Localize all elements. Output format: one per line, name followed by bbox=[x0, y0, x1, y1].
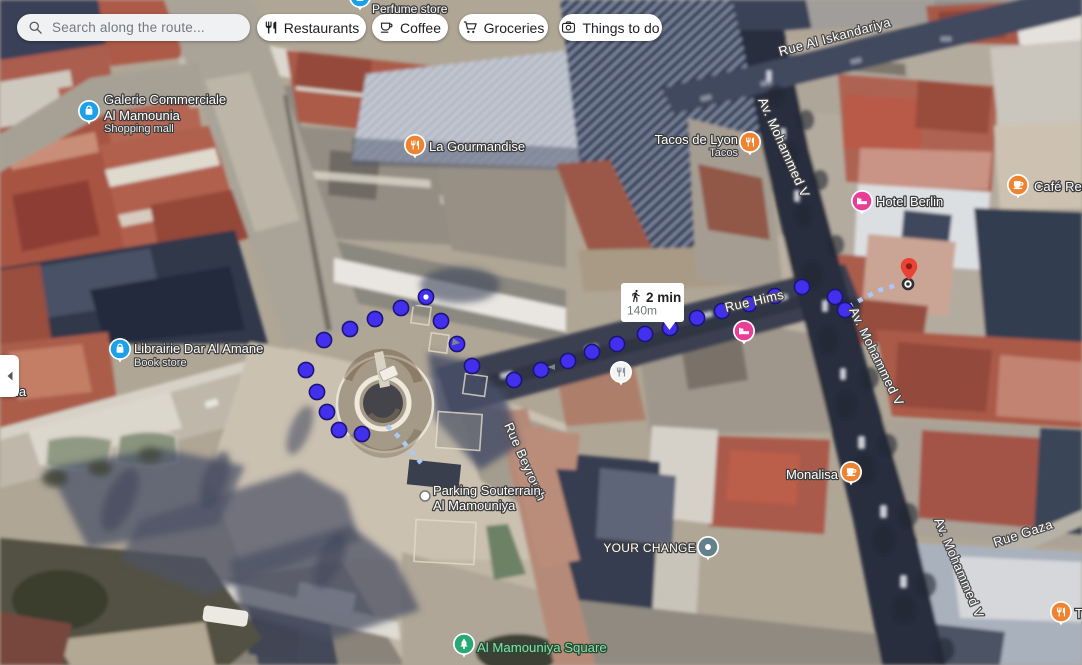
svg-text:Al Mamouniya Square: Al Mamouniya Square bbox=[477, 640, 607, 655]
svg-text:Galerie Commerciale: Galerie Commerciale bbox=[104, 92, 226, 107]
svg-text:Tacos de Lyon: Tacos de Lyon bbox=[655, 132, 738, 147]
svg-text:YOUR CHANGE: YOUR CHANGE bbox=[603, 541, 696, 555]
svg-text:Parking Souterrain: Parking Souterrain bbox=[433, 483, 541, 498]
svg-text:T: T bbox=[1075, 606, 1082, 621]
svg-text:Tacos: Tacos bbox=[709, 147, 738, 159]
svg-text:Librairie Dar Al Amane: Librairie Dar Al Amane bbox=[134, 341, 263, 356]
svg-text:Al Mamouniya: Al Mamouniya bbox=[433, 498, 516, 513]
svg-text:Hotel Berlin: Hotel Berlin bbox=[876, 194, 943, 209]
svg-text:Shopping mall: Shopping mall bbox=[104, 123, 174, 135]
svg-text:Monalisa: Monalisa bbox=[786, 467, 839, 482]
svg-text:Book store: Book store bbox=[134, 357, 187, 369]
svg-text:140m: 140m bbox=[627, 304, 657, 318]
svg-text:Al Mamounia: Al Mamounia bbox=[104, 108, 181, 123]
svg-text:La Gourmandise: La Gourmandise bbox=[429, 139, 525, 154]
svg-text:Café Res: Café Res bbox=[1034, 179, 1082, 194]
